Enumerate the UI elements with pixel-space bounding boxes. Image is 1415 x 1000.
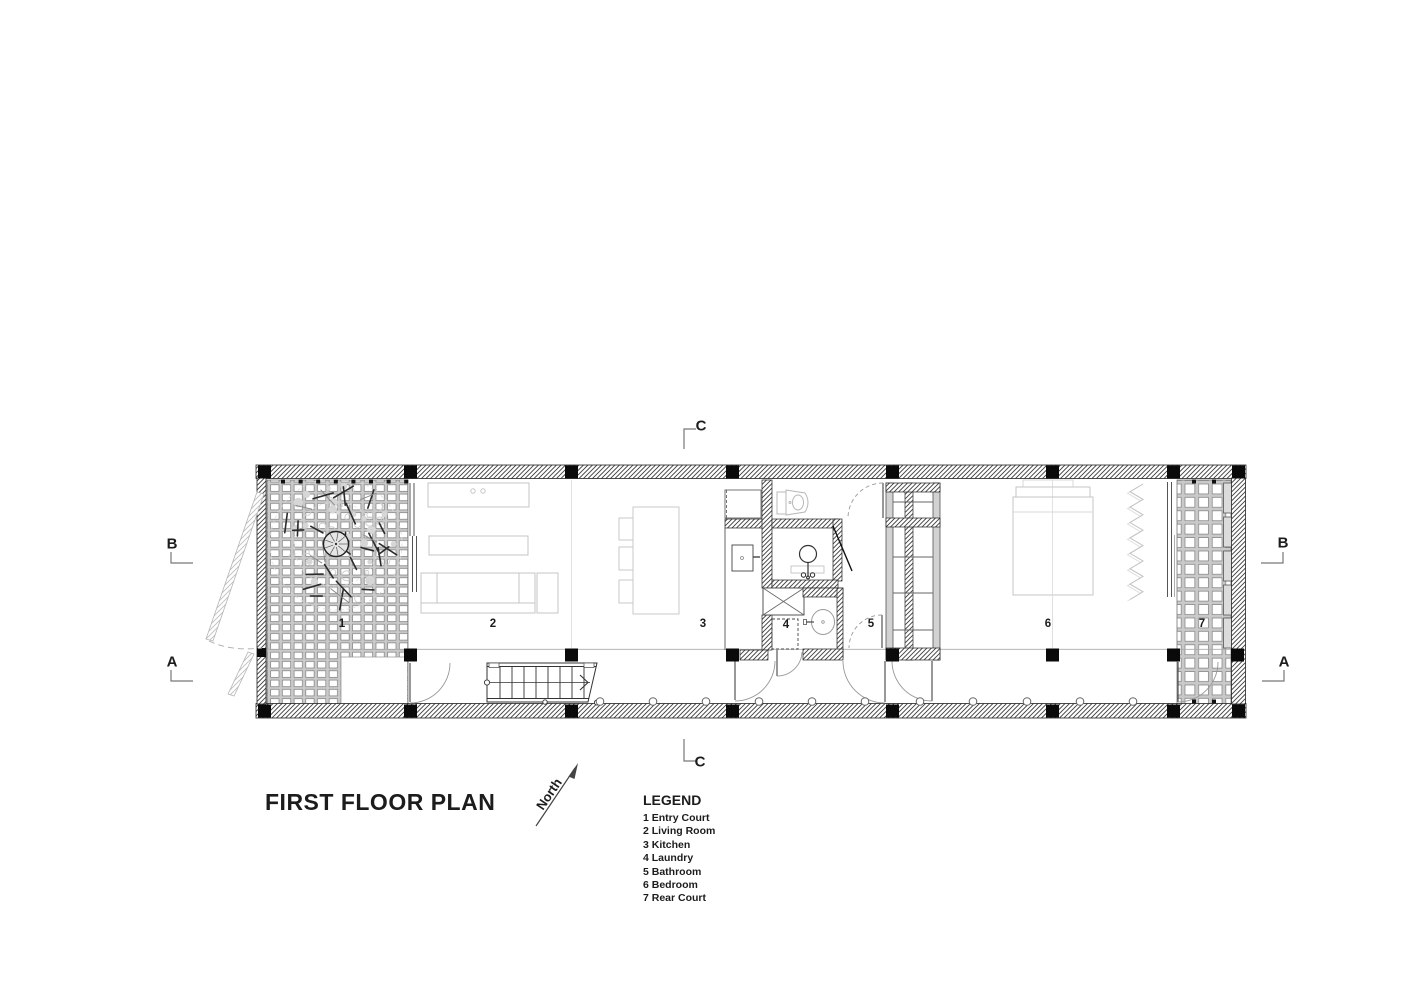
chair <box>619 547 633 570</box>
chair <box>619 518 633 540</box>
bedroom-sliding-door <box>1168 482 1175 597</box>
east-wall <box>1232 478 1246 704</box>
section-line-b-left <box>171 552 193 563</box>
legend-heading: LEGEND <box>643 792 715 808</box>
entry-gate <box>206 492 264 696</box>
headboard-shelf <box>1023 480 1073 487</box>
entry-vestibule <box>341 657 407 704</box>
drawing-sheet: { "drawing": { "title": "FIRST FLOOR PLA… <box>0 0 1415 1000</box>
shelf <box>429 536 528 555</box>
section-line-a-right <box>1262 670 1284 681</box>
section-line-c-top <box>684 429 696 449</box>
legend-item: 7 Rear Court <box>643 892 715 905</box>
room-number-label: 7 <box>1199 618 1205 630</box>
wall <box>762 480 772 588</box>
bath-sink <box>804 610 835 635</box>
west-wall <box>257 478 266 704</box>
section-letter-b-right: B <box>1278 535 1289 552</box>
room-number-label: 2 <box>490 618 496 630</box>
toilet <box>777 490 808 515</box>
kitchen-sink <box>732 545 753 571</box>
wall <box>762 615 772 650</box>
section-letter-a-left: A <box>167 654 178 671</box>
section-line-a-left <box>171 670 193 681</box>
upper-cabinet <box>725 490 761 518</box>
legend-item: 4 Laundry <box>643 852 715 865</box>
chair <box>619 580 633 603</box>
section-letter-c-bottom: C <box>695 754 706 771</box>
room-number-label: 6 <box>1045 618 1051 630</box>
legend-item: 3 Kitchen <box>643 839 715 852</box>
curtain-zigzag <box>1128 484 1144 601</box>
dining-furniture <box>619 507 679 614</box>
dining-table <box>633 507 679 614</box>
court-sliding-door <box>410 483 417 592</box>
legend-item: 2 Living Room <box>643 825 715 838</box>
legend-item: 5 Bathroom <box>643 866 715 879</box>
living-room-furniture <box>421 483 558 613</box>
room-number-label: 5 <box>868 618 874 630</box>
legend-items: 1 Entry Court2 Living Room3 Kitchen4 Lau… <box>643 812 715 906</box>
rear-court-paving <box>1177 480 1231 704</box>
kitchen-fixtures <box>725 480 772 650</box>
side-table <box>537 573 558 613</box>
section-letter-a-right: A <box>1279 654 1290 671</box>
shelving-unit <box>886 483 940 660</box>
room-number-label: 3 <box>700 618 706 630</box>
legend: LEGEND 1 Entry Court2 Living Room3 Kitch… <box>643 792 715 906</box>
legend-item: 6 Bedroom <box>643 879 715 892</box>
room-number-label: 1 <box>339 618 345 630</box>
room-number-label: 4 <box>783 619 789 631</box>
shower-fixture <box>791 546 824 579</box>
stair <box>484 663 599 705</box>
legend-item: 1 Entry Court <box>643 812 715 825</box>
section-line-b-right <box>1261 552 1283 563</box>
page-title: FIRST FLOOR PLAN <box>265 789 495 816</box>
section-letter-c-top: C <box>696 418 707 435</box>
tv-console <box>428 483 529 507</box>
sofa <box>421 573 535 603</box>
section-letter-b-left: B <box>167 536 178 553</box>
north-arrowhead <box>569 763 579 779</box>
